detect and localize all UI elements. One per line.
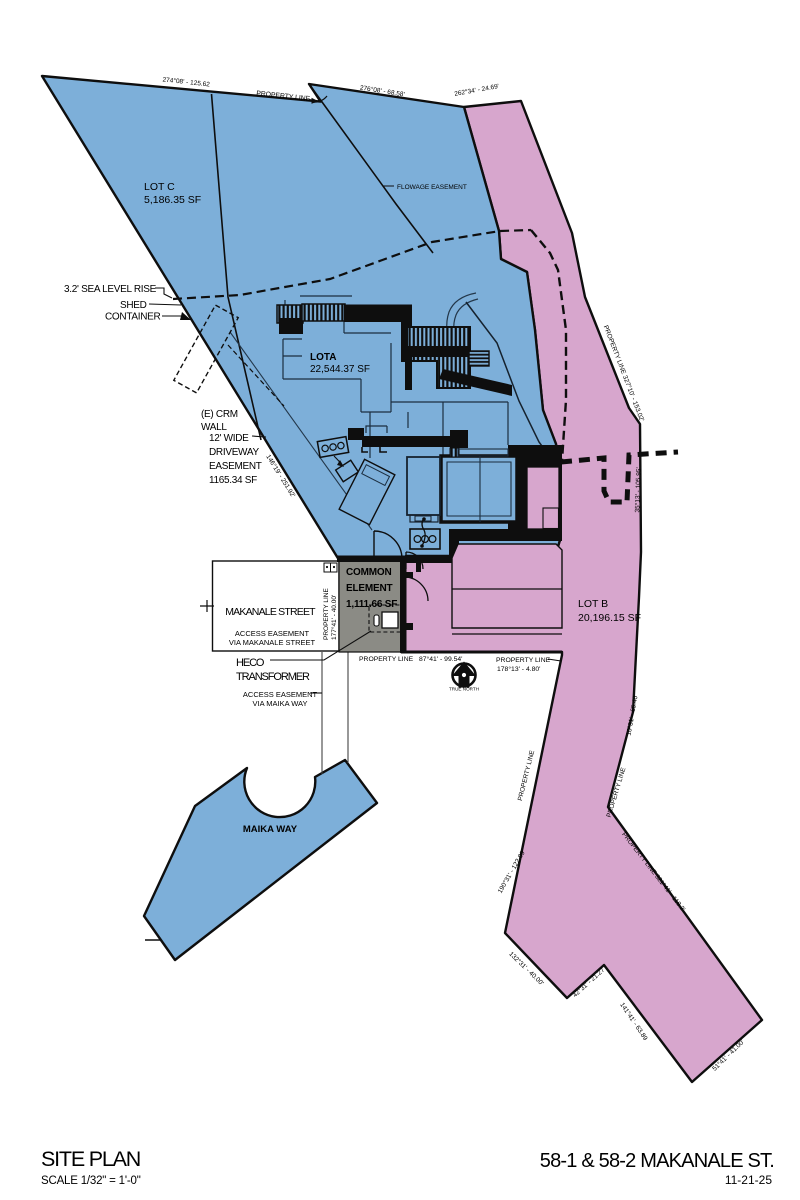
svg-text:3.2' SEA LEVEL RISE: 3.2' SEA LEVEL RISE: [64, 284, 157, 295]
svg-text:MAIKA WAY: MAIKA WAY: [243, 824, 298, 835]
svg-text:178°13' - 4.80': 178°13' - 4.80': [497, 665, 540, 673]
svg-text:PROPERTY LINE: PROPERTY LINE: [496, 657, 551, 664]
svg-text:11-21-25: 11-21-25: [725, 1173, 772, 1187]
svg-text:LOT C: LOT C: [144, 181, 175, 193]
svg-text:177°41' - 40.00': 177°41' - 40.00': [330, 595, 338, 640]
svg-text:HECO: HECO: [236, 657, 265, 669]
svg-text:VIA MAIKA WAY: VIA MAIKA WAY: [252, 699, 307, 708]
svg-text:SCALE 1/32" = 1'-0": SCALE 1/32" = 1'-0": [41, 1175, 141, 1187]
svg-text:VIA MAKANALE STREET: VIA MAKANALE STREET: [229, 638, 316, 647]
svg-text:(E) CRM: (E) CRM: [201, 409, 238, 420]
svg-text:ACCESS EASEMENT: ACCESS EASEMENT: [243, 690, 318, 699]
svg-text:20,196.15 SF: 20,196.15 SF: [578, 612, 641, 624]
svg-text:MAKANALE STREET: MAKANALE STREET: [225, 606, 316, 618]
svg-text:22,544.37 SF: 22,544.37 SF: [310, 364, 370, 375]
svg-text:262°34' - 24.69': 262°34' - 24.69': [454, 82, 500, 98]
svg-text:FLOWAGE EASEMENT: FLOWAGE EASEMENT: [397, 184, 467, 191]
svg-text:1165.34 SF: 1165.34 SF: [209, 475, 257, 486]
svg-text:35°13' - 105.95': 35°13' - 105.95': [633, 467, 643, 512]
svg-text:SITE PLAN: SITE PLAN: [41, 1147, 140, 1171]
svg-text:5,186.35 SF: 5,186.35 SF: [144, 194, 201, 206]
svg-text:CONTAINER: CONTAINER: [105, 312, 161, 323]
svg-text:12' WIDE: 12' WIDE: [209, 433, 249, 444]
svg-text:TRUE NORTH: TRUE NORTH: [449, 687, 479, 692]
svg-text:WALL: WALL: [201, 422, 227, 433]
svg-text:EASEMENT: EASEMENT: [209, 461, 262, 472]
svg-text:TRANSFORMER: TRANSFORMER: [236, 671, 310, 683]
svg-text:PROPERTY LINE: PROPERTY LINE: [359, 656, 414, 663]
svg-text:58-1 & 58-2 MAKANALE ST.: 58-1 & 58-2 MAKANALE ST.: [540, 1150, 774, 1172]
svg-text:LOT B: LOT B: [578, 598, 608, 610]
svg-text:LOTA: LOTA: [310, 352, 336, 363]
svg-text:PROPERTY LINE: PROPERTY LINE: [323, 588, 330, 640]
svg-text:COMMON: COMMON: [346, 567, 391, 578]
svg-text:ACCESS EASEMENT: ACCESS EASEMENT: [235, 629, 310, 638]
svg-text:SHED: SHED: [120, 300, 147, 311]
svg-text:87°41' - 99.54': 87°41' - 99.54': [419, 655, 462, 663]
svg-text:1,111.66 SF: 1,111.66 SF: [346, 599, 397, 610]
svg-text:ELEMENT: ELEMENT: [346, 583, 392, 594]
svg-text:DRIVEWAY: DRIVEWAY: [209, 447, 259, 458]
